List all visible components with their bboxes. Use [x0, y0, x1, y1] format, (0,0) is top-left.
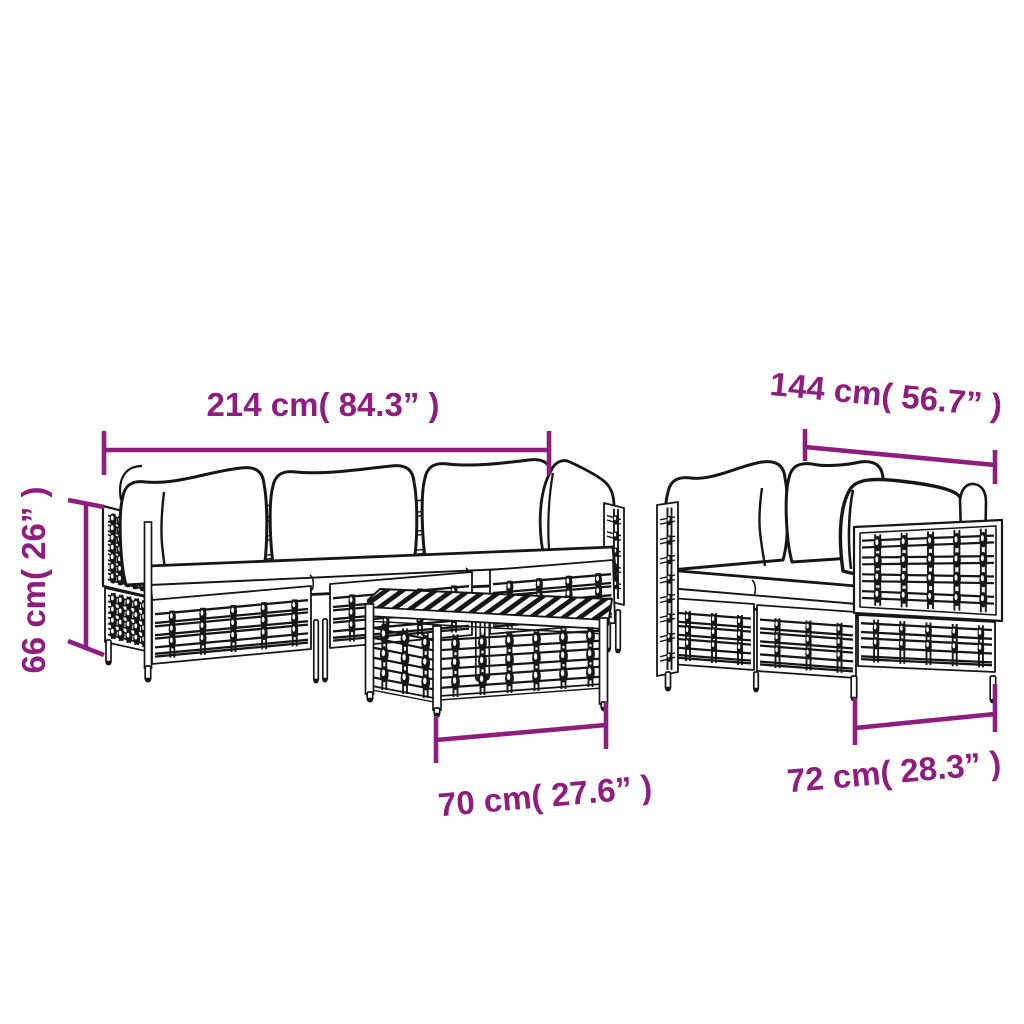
svg-text:66 cm( 26” ): 66 cm( 26” ): [15, 486, 52, 673]
svg-text:214 cm( 84.3” ): 214 cm( 84.3” ): [207, 386, 440, 423]
